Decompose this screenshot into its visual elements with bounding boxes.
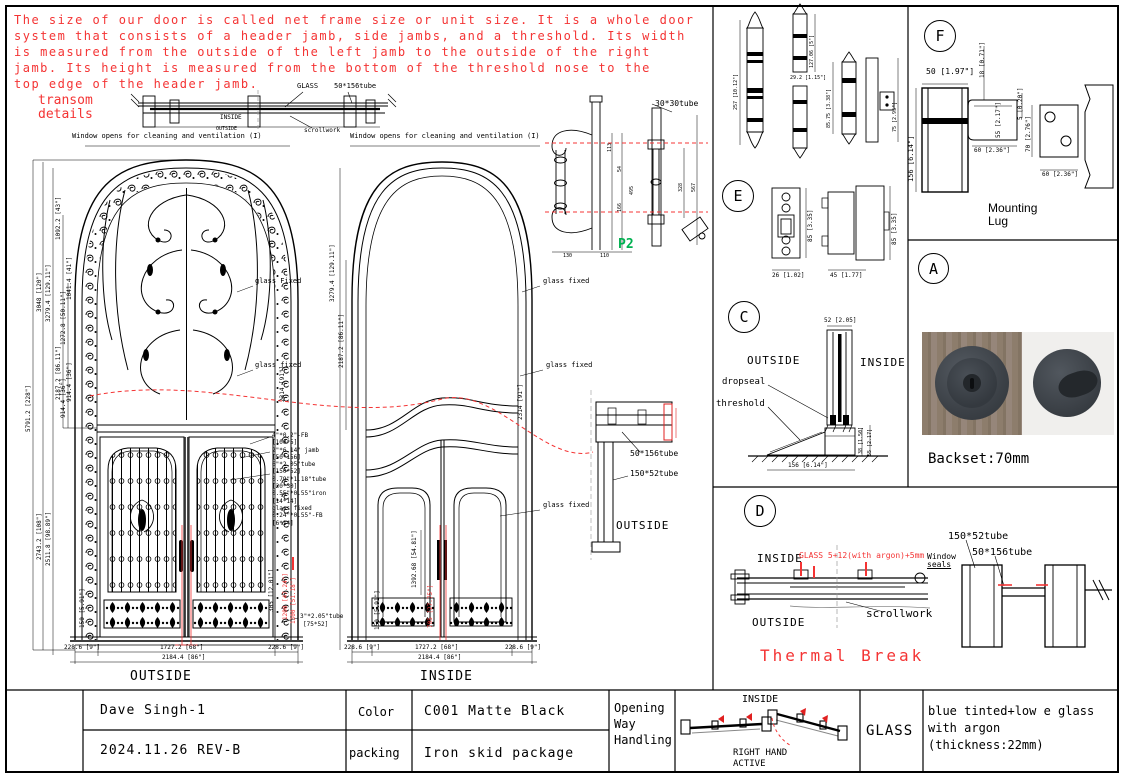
ld-callout-tube75: 3"*2.05"tube: [300, 614, 343, 620]
tb-glass-label: GLASS: [866, 724, 913, 739]
hinge-dim-257: 257 [10.12"]: [734, 74, 739, 110]
detail-letter-a: A: [929, 260, 938, 278]
pc-threshold-label: threshold: [716, 400, 765, 409]
ld-dim-b4: 2184.4 [86"]: [162, 655, 205, 661]
tb-open-line3: Handling: [614, 732, 672, 748]
transom-glass-label: GLASS: [297, 83, 318, 90]
pf-dim-70: 70 [2.76"]: [1026, 116, 1032, 152]
pf-caption-line2: Lug: [988, 215, 1037, 228]
rd-dim-b2: 1727.2 [68"]: [415, 645, 458, 651]
hd-dim-166: 166: [618, 203, 623, 212]
ld-dim-305: 305 [12.01"]: [269, 569, 275, 612]
pf-caption-line1: Mounting: [988, 202, 1037, 215]
pf-dim-60b: 60 [2.36"]: [1042, 172, 1078, 178]
tb-hand-line1: RIGHT HAND: [733, 748, 787, 759]
rd-glass-fixed-1: glass fixed: [543, 278, 589, 285]
callout-line: glass fixed: [272, 505, 326, 512]
window-note-left: Window opens for cleaning and ventilatio…: [72, 133, 262, 140]
handle-detail-drawing: [552, 96, 708, 252]
pc-inside-label: INSIDE: [860, 357, 906, 369]
tb-name: Dave Singh-1: [100, 704, 206, 718]
pe-dim-45: 45 [1.77]: [830, 273, 863, 279]
pe-dim-26: 26 [1.02]: [772, 273, 805, 279]
detail-letter-c: C: [739, 308, 748, 326]
transom-tube-label: 50*156tube: [334, 83, 376, 90]
jamb-outside-label: OUTSIDE: [616, 520, 669, 532]
ld-dim-2314: 2314 [91"]: [280, 366, 286, 402]
note-line-2: system that consists of a header jamb, s…: [14, 28, 695, 44]
page-marker-p2: P2: [618, 238, 634, 252]
tb-open-line1: Opening: [614, 700, 672, 716]
pc-dim-55: 55 [2.17]: [868, 429, 873, 456]
note-line-3: is measured from the outside of the left…: [14, 44, 695, 60]
pd-tube2-label: 50*156tube: [972, 548, 1032, 559]
ld-dim-914b: 914.4 [36"]: [61, 378, 67, 418]
ld-dim-5791: 5791.2 [228"]: [26, 385, 32, 432]
note-line-1: The size of our door is called net frame…: [14, 12, 695, 28]
handle-tube-label: 30*30tube: [655, 100, 698, 108]
callout-line: [20*30]: [272, 483, 326, 490]
tb-packing-label: packing: [349, 747, 400, 760]
callout-line: [14*14]: [272, 498, 326, 505]
pd-glass-note: GLASS 5+12(with argon)+5mm: [799, 552, 924, 560]
pc-dropseal-label: dropseal: [722, 378, 765, 387]
rd-dim-b1: 228.6 [9"]: [344, 645, 380, 651]
pf-dim-60a: 60 [2.36"]: [974, 148, 1010, 154]
ld-callout-tube75-size: [75*52]: [303, 622, 328, 628]
lock-photo: [922, 332, 1114, 435]
rd-dim-2187: 2187.2 [86.11"]: [339, 314, 345, 368]
callout-line: 4"*0.2"-FB: [272, 432, 326, 439]
size-note: The size of our door is called net frame…: [14, 12, 695, 92]
pc-dim-156: 156 [6.14"]: [788, 463, 828, 469]
pd-inside-label: INSIDE: [757, 553, 803, 565]
rd-dim-1392: 1392.68 [54.81"]: [412, 530, 418, 588]
detail-circle-c: C: [728, 301, 760, 333]
jamb-tube1-label: 50*156tube: [630, 450, 678, 458]
rd-dim-b3: 228.6 [9"]: [505, 645, 541, 651]
pc-outside-label: OUTSIDE: [747, 355, 800, 367]
hd-dim-567: 567: [692, 183, 697, 192]
ld-glass-fixed-2: glass fixed: [255, 362, 301, 369]
pc-dim-38: 38 [1.50]: [859, 427, 864, 454]
hd-dim-130: 130: [563, 254, 572, 259]
tb-color-label: Color: [358, 706, 394, 719]
ld-dim-150: 150 [5.91"]: [80, 588, 86, 628]
ld-dim-3048: 3048 [120"]: [37, 272, 43, 312]
transom-details-label: transom details: [38, 94, 93, 121]
lock-photo-inside: [1022, 332, 1114, 435]
callout-line: 6"*2.05"tube: [272, 461, 326, 468]
ld-dim-red-1300: 1300 [51.18"]: [291, 577, 297, 624]
detail-letter-e: E: [733, 187, 742, 205]
right-door-elevation: [347, 162, 537, 641]
pd-outside-label: OUTSIDE: [752, 617, 805, 629]
detail-letter-d: D: [755, 502, 764, 520]
tb-opening-way: Opening Way Handling: [614, 700, 672, 748]
tb-glass-spec: blue tinted+low e glass with argon (thic…: [928, 703, 1094, 754]
backset-caption: Backset:70mm: [928, 452, 1029, 467]
hinge-dim-75: 75 [2.95"]: [893, 102, 898, 132]
thermal-break-title: Thermal Break: [760, 648, 924, 665]
callout-line: [100*5]: [272, 439, 326, 446]
pc-dim-52: 52 [2.05]: [824, 318, 857, 324]
ld-dim-2743: 2743.2 [108"]: [37, 513, 43, 560]
rd-glass-fixed-3: glass fixed: [543, 502, 589, 509]
rd-glass-fixed-2: glass fixed: [546, 362, 592, 369]
pd-tube1-label: 150*52tube: [948, 532, 1008, 543]
hd-dim-110: 110: [600, 254, 609, 259]
rd-dim-3279: 3279.4 [129.11"]: [330, 244, 336, 302]
ld-dim-914a: 914.4 [36"]: [67, 362, 73, 402]
rd-view-label: INSIDE: [420, 670, 473, 684]
transom-word-1: transom: [38, 94, 93, 108]
ld-dim-red-1200: 1200 [47.24"]: [283, 573, 289, 620]
tb-glass-line3: (thickness:22mm): [928, 737, 1094, 754]
hd-dim-328: 328: [679, 183, 684, 192]
pd-window-seals: Window seals: [927, 553, 956, 570]
pf-dim-18: 18 [0.71"]: [980, 42, 986, 78]
ld-dim-b2: 1727.2 [68"]: [160, 645, 203, 651]
rd-dim-150: 150 [5.91"]: [375, 590, 381, 630]
rd-dim-2314: 2314 [91"]: [518, 384, 524, 420]
ld-dim-2511: 2511.8 [98.89"]: [46, 512, 52, 566]
ld-glass-fixed-1: glass Fixed: [255, 278, 301, 285]
tb-open-line2: Way: [614, 716, 672, 732]
rd-dim-red-705: 705 [27.75"]: [428, 585, 434, 628]
panel-e-drawing: [772, 186, 890, 270]
jamb-tube2-label: 150*52tube: [630, 470, 678, 478]
hd-dim-54: 54: [618, 166, 623, 172]
ld-view-label: OUTSIDE: [130, 670, 192, 684]
callout-line: 0.24"*0.55"-FB: [272, 512, 326, 519]
hd-dim-113: 113: [608, 143, 613, 152]
callout-line: [50*156]: [272, 454, 326, 461]
drawing-sheet: The size of our door is called net frame…: [0, 0, 1124, 782]
transom-inside-label: INSIDE: [220, 115, 242, 121]
ld-dim-1272: 1272.8 [50.11"]: [61, 291, 67, 345]
ld-callout-stack: 4"*0.2"-FB [100*5] 2"*6.14" jamb [50*156…: [272, 432, 326, 527]
pd-scrollwork-label: scrollwork: [866, 608, 932, 620]
transom-word-2: details: [38, 108, 93, 122]
tb-glass-line1: blue tinted+low e glass: [928, 703, 1094, 720]
handing-sketch: [681, 708, 847, 745]
pe-dim-85b: 85 [3.35]: [892, 212, 898, 245]
tb-rev: 2024.11.26 REV-B: [100, 744, 241, 758]
ld-dim-3279: 3279.4 [129.11"]: [46, 264, 52, 322]
detail-circle-a: A: [918, 253, 949, 284]
window-note-right: Window opens for cleaning and ventilatio…: [350, 133, 540, 140]
pf-dim-5: 5 [0.20"]: [1018, 87, 1024, 120]
callout-line: 0.79"*1.18"tube: [272, 476, 326, 483]
callout-line: 2"*6.14" jamb: [272, 447, 326, 454]
tb-hand-line2: ACTIVE: [733, 759, 787, 770]
pf-caption: Mounting Lug: [988, 202, 1037, 227]
ld-dim-1041: 1041.4 [41"]: [67, 257, 73, 300]
hinge-dim-85: 85.75 [3.38"]: [827, 89, 832, 128]
note-line-4: jamb. Its height is measured from the bo…: [14, 60, 695, 76]
detail-circle-f: F: [924, 20, 956, 52]
tb-color-value: C001 Matte Black: [424, 705, 565, 719]
pf-dim-55: 55 [2.17"]: [996, 102, 1002, 138]
pd-ws-line2: seals: [927, 561, 956, 569]
tb-hand-label: RIGHT HAND ACTIVE: [733, 748, 787, 770]
ld-dim-b3: 228.6 [9"]: [268, 645, 304, 651]
tb-plan-inside: INSIDE: [742, 695, 778, 706]
callout-line: [150*52]: [272, 468, 326, 475]
rd-dim-b4: 2184.4 [86"]: [418, 655, 461, 661]
hinge-dim-127: 127.06 [5"]: [810, 35, 815, 68]
pf-dim-50: 50 [1.97"]: [926, 68, 974, 76]
pf-dim-156: 156 [6.14"]: [908, 136, 915, 182]
detail-circle-e: E: [722, 180, 754, 212]
tb-glass-line2: with argon: [928, 720, 1094, 737]
ld-dim-b1: 228.6 [9"]: [64, 645, 100, 651]
hinge-dim-29: 29.2 [1.15"]: [790, 76, 826, 81]
hd-dim-495: 495: [630, 186, 635, 195]
callout-line: 0.55"*0.55"iron: [272, 490, 326, 497]
pe-dim-85a: 85 [3.35]: [808, 209, 814, 242]
lock-photo-outside: [922, 332, 1022, 435]
transom-scrollwork-label: scrollwork: [304, 128, 340, 134]
tb-packing-value: Iron skid package: [424, 747, 574, 761]
callout-line: [6*14]: [272, 520, 326, 527]
keyway-slot: [970, 378, 974, 389]
detail-letter-f: F: [935, 27, 944, 45]
ld-dim-1092: 1092.2 [43"]: [56, 197, 62, 240]
detail-circle-d: D: [744, 495, 776, 527]
